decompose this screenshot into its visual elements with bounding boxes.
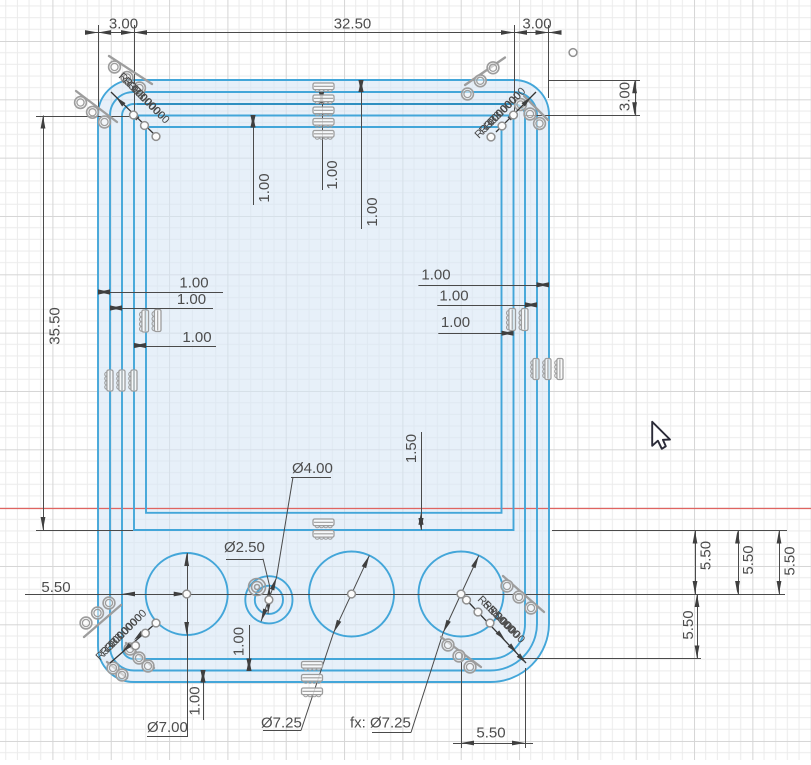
svg-text:5.50: 5.50: [41, 579, 70, 596]
svg-text:1.00: 1.00: [439, 288, 468, 305]
svg-text:5.50: 5.50: [698, 541, 715, 570]
svg-text:35.50: 35.50: [47, 307, 64, 345]
svg-text:3.00: 3.00: [617, 82, 634, 111]
svg-text:32.50: 32.50: [334, 16, 372, 33]
svg-text:Ø2.50: Ø2.50: [224, 539, 265, 556]
svg-text:Ø4.00: Ø4.00: [292, 460, 333, 477]
svg-text:5.50: 5.50: [476, 725, 505, 742]
svg-text:1.00: 1.00: [364, 197, 381, 226]
svg-text:1.00: 1.00: [177, 291, 206, 308]
svg-text:fx: Ø7.25: fx: Ø7.25: [350, 715, 411, 732]
svg-text:3.00: 3.00: [522, 16, 551, 33]
svg-text:1.00: 1.00: [324, 160, 341, 189]
svg-text:5.50: 5.50: [680, 610, 697, 639]
svg-text:1.00: 1.00: [256, 173, 273, 202]
svg-text:3.00: 3.00: [109, 16, 138, 33]
svg-text:1.00: 1.00: [182, 329, 211, 346]
svg-text:1.00: 1.00: [179, 275, 208, 292]
svg-text:1.00: 1.00: [441, 314, 470, 331]
svg-text:Ø7.00: Ø7.00: [147, 719, 188, 736]
svg-text:5.50: 5.50: [740, 545, 757, 574]
svg-text:5.50: 5.50: [782, 546, 799, 575]
svg-text:1.00: 1.00: [421, 267, 450, 284]
svg-text:1.00: 1.00: [187, 686, 204, 715]
svg-text:Ø7.25: Ø7.25: [261, 715, 302, 732]
svg-text:1.00: 1.00: [231, 627, 248, 656]
svg-text:1.50: 1.50: [403, 434, 420, 463]
